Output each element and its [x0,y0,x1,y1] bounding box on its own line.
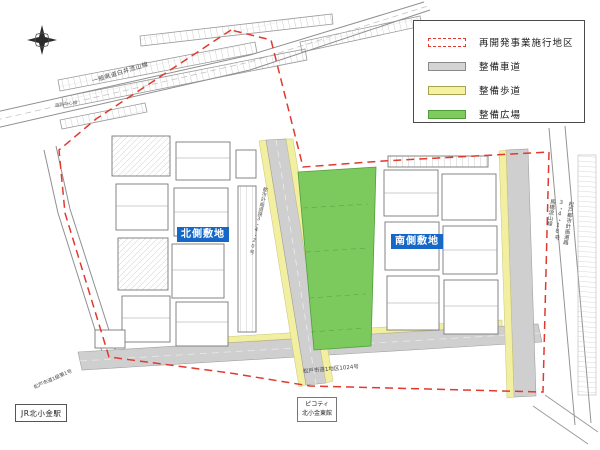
station-label: JR北小金駅 [15,404,67,422]
east-road [499,149,536,398]
plaza-swatch [428,110,466,119]
picoty-label-line1: ピコティ [302,400,332,409]
roadway-swatch [428,62,466,71]
legend-item-plaza: 整備広場 [428,102,584,126]
sidewalk-swatch [428,86,466,95]
legend-item-sidewalk: 整備歩道 [428,78,584,102]
legend-label: 整備歩道 [479,83,521,97]
legend-label: 整備車道 [479,59,521,73]
legend-item-district: 再開発事業施行地区 [428,30,584,54]
compass-rose-icon [27,25,57,55]
legend-item-roadway: 整備車道 [428,54,584,78]
west-road [44,146,116,358]
south-site-label: 南側敷地 [391,234,443,249]
legend-label: 再開発事業施行地区 [479,35,574,49]
site-plan-map: 再開発事業施行地区 整備車道 整備歩道 整備広場 北側敷地 南側敷地 JR北小金… [0,0,600,450]
legend: 再開発事業施行地区 整備車道 整備歩道 整備広場 [413,20,585,123]
north-site-buildings [95,136,256,348]
east-outer-road [533,126,598,444]
legend-label: 整備広場 [479,107,521,121]
picoty-label-line2: 北小金東館 [302,409,332,418]
district-boundary-swatch [428,38,466,47]
north-site-label: 北側敷地 [177,227,229,242]
picoty-building-label: ピコティ 北小金東館 [297,397,337,422]
prefectural-road [0,2,430,128]
